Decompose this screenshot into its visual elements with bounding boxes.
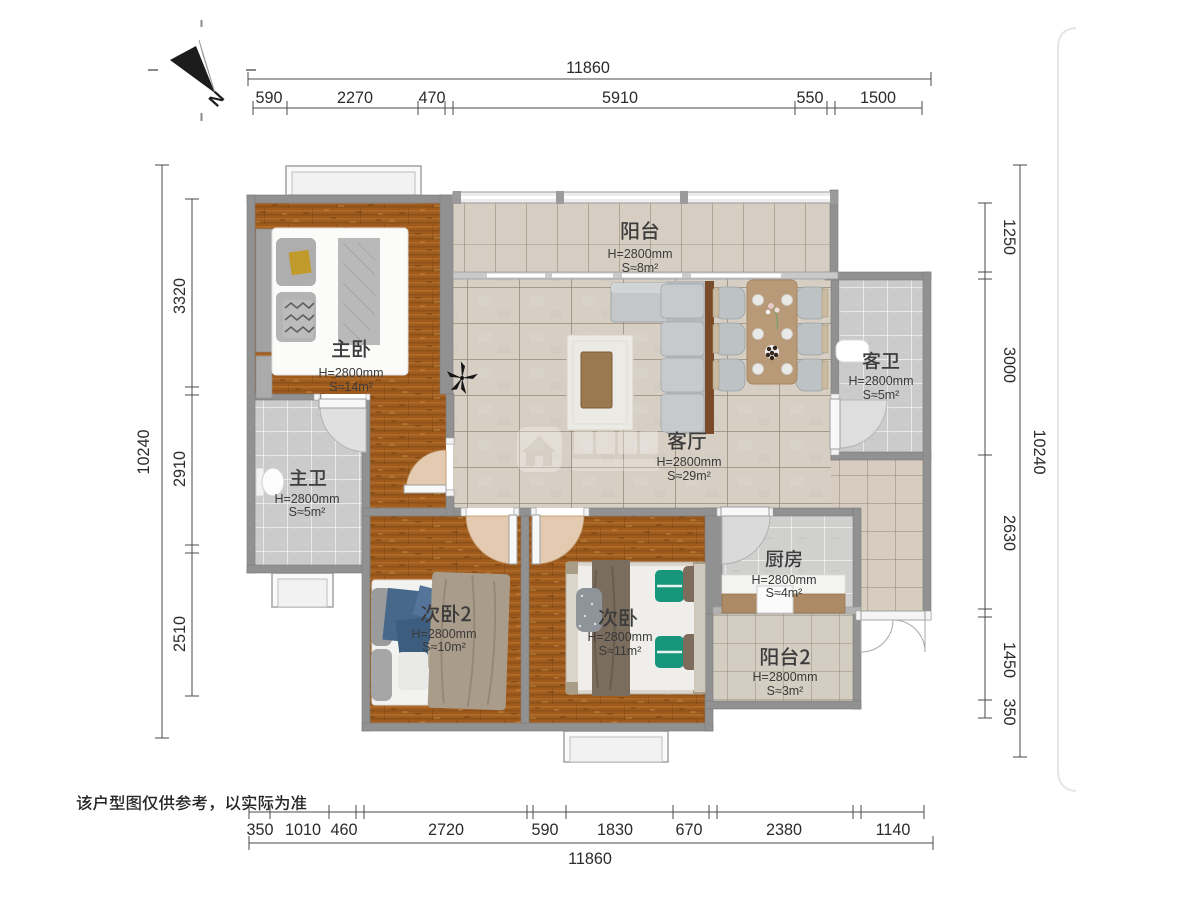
svg-text:H=2800mm: H=2800mm [412, 627, 477, 641]
svg-text:11860: 11860 [566, 59, 610, 77]
svg-text:S≈3m²: S≈3m² [767, 684, 804, 698]
svg-text:1140: 1140 [876, 821, 911, 839]
svg-text:S≈8m²: S≈8m² [622, 261, 659, 275]
svg-text:470: 470 [418, 89, 445, 107]
svg-text:550: 550 [796, 89, 823, 107]
svg-text:590: 590 [255, 89, 282, 107]
svg-text:S≈11m²: S≈11m² [599, 644, 642, 658]
svg-text:S≈5m²: S≈5m² [863, 388, 900, 402]
svg-text:460: 460 [330, 821, 357, 839]
svg-text:S≈5m²: S≈5m² [289, 505, 326, 519]
svg-text:S≈29m²: S≈29m² [667, 469, 711, 483]
svg-text:350: 350 [246, 821, 273, 839]
svg-text:H=2800mm: H=2800mm [588, 630, 653, 644]
svg-text:1500: 1500 [860, 89, 896, 107]
svg-text:11860: 11860 [568, 850, 612, 868]
svg-text:2270: 2270 [337, 89, 373, 107]
svg-text:2380: 2380 [766, 821, 802, 839]
svg-text:3320: 3320 [171, 278, 189, 314]
svg-text:H=2800mm: H=2800mm [753, 670, 818, 684]
svg-text:350: 350 [1000, 698, 1018, 725]
svg-text:2630: 2630 [1000, 515, 1018, 551]
svg-text:10240: 10240 [1030, 429, 1048, 474]
svg-text:2720: 2720 [428, 821, 464, 839]
svg-text:S≈14m²: S≈14m² [329, 380, 373, 394]
svg-text:H=2800mm: H=2800mm [319, 366, 384, 380]
svg-text:590: 590 [531, 821, 558, 839]
svg-text:1010: 1010 [285, 821, 321, 839]
svg-text:H=2800mm: H=2800mm [275, 492, 340, 506]
svg-text:1250: 1250 [1000, 219, 1018, 255]
svg-text:10240: 10240 [135, 429, 153, 474]
svg-text:S≈10m²: S≈10m² [422, 640, 466, 654]
svg-text:H=2800mm: H=2800mm [608, 247, 673, 261]
svg-text:2510: 2510 [171, 616, 189, 652]
svg-text:S≈4m²: S≈4m² [766, 586, 803, 600]
svg-text:1830: 1830 [597, 821, 633, 839]
svg-text:1450: 1450 [1000, 642, 1018, 678]
svg-text:3000: 3000 [1000, 347, 1018, 383]
svg-text:H=2800mm: H=2800mm [752, 573, 817, 587]
svg-text:670: 670 [675, 821, 702, 839]
svg-text:2910: 2910 [171, 451, 189, 487]
svg-text:5910: 5910 [602, 89, 638, 107]
svg-text:H=2800mm: H=2800mm [657, 455, 722, 469]
svg-text:H=2800mm: H=2800mm [849, 374, 914, 388]
